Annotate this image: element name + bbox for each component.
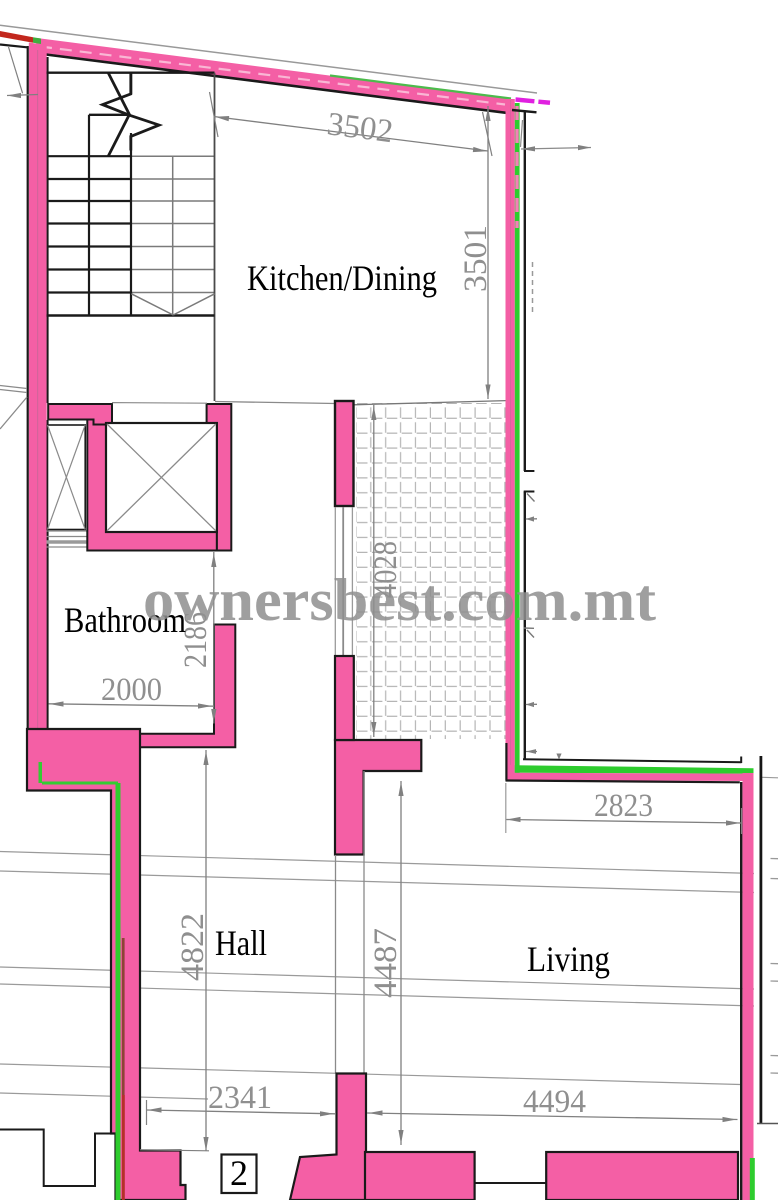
svg-text:2: 2 [230,1153,248,1193]
svg-text:2823: 2823 [594,788,653,824]
svg-text:Hall: Hall [215,923,267,963]
svg-text:ownersbest.com.mt: ownersbest.com.mt [143,567,656,633]
svg-text:4487: 4487 [368,928,404,998]
svg-text:3501: 3501 [458,225,494,292]
svg-text:2000: 2000 [101,672,162,708]
svg-text:2341: 2341 [208,1080,272,1116]
svg-text:4494: 4494 [523,1084,586,1120]
svg-text:Kitchen/Dining: Kitchen/Dining [247,258,437,298]
svg-text:Living: Living [527,939,610,979]
svg-text:4822: 4822 [175,913,211,981]
